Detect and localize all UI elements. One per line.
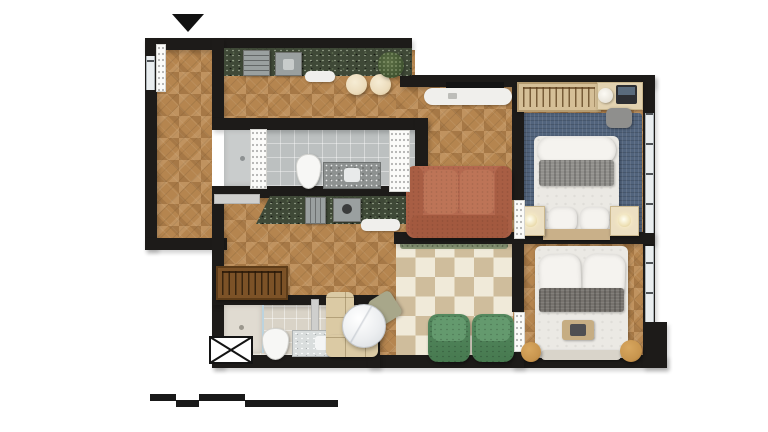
lamp-icon bbox=[524, 214, 537, 227]
scale-bar-segment-1 bbox=[150, 394, 176, 401]
coat-closet bbox=[216, 266, 288, 300]
service-shaft-x-icon bbox=[209, 336, 253, 364]
bedroom1-window bbox=[645, 113, 654, 233]
scale-bar-segment-2 bbox=[176, 400, 199, 407]
laptop-icon bbox=[616, 85, 637, 104]
breakfast-tray bbox=[562, 320, 594, 340]
nightstand-right bbox=[610, 206, 639, 236]
bedroom1-door-leaf bbox=[514, 200, 525, 239]
bed2 bbox=[535, 246, 628, 358]
sofa-back bbox=[410, 215, 508, 238]
desk-pad bbox=[598, 88, 613, 103]
pouf-right bbox=[620, 340, 642, 362]
plant-icon bbox=[378, 52, 404, 78]
pouf-left bbox=[521, 342, 541, 362]
hangers bbox=[222, 271, 282, 295]
entry-window bbox=[146, 56, 155, 90]
entry-door-leaf bbox=[156, 44, 166, 92]
entrance-arrow-icon bbox=[168, 12, 208, 34]
bedroom2-window bbox=[645, 246, 654, 322]
wall-bathroom1-top bbox=[212, 118, 428, 130]
tray-item bbox=[570, 324, 586, 336]
burner bbox=[342, 204, 352, 214]
bathroom1-door-left bbox=[250, 129, 267, 189]
vanity-1 bbox=[323, 162, 381, 189]
green-armchair-2 bbox=[472, 314, 514, 362]
kitchen-shelf-lower bbox=[361, 219, 400, 231]
kitchen-sink-upper bbox=[275, 52, 302, 76]
remote bbox=[448, 93, 457, 99]
shower2-head bbox=[239, 325, 244, 330]
kitchen-stool-1 bbox=[346, 74, 367, 95]
wall-dining-bedroom2 bbox=[512, 244, 524, 312]
bed2-bench bbox=[541, 350, 621, 360]
wall-spine-upper bbox=[212, 38, 224, 122]
desk-chair bbox=[606, 108, 632, 128]
bed1-blanket bbox=[539, 160, 614, 186]
sofa-cushion-1 bbox=[424, 170, 458, 214]
green-armchair-1 bbox=[428, 314, 470, 362]
lamp-icon bbox=[618, 214, 631, 227]
oven-icon bbox=[305, 197, 326, 224]
stove-icon bbox=[243, 50, 270, 76]
sofa-terracotta bbox=[406, 166, 512, 238]
hallway-sliding-door bbox=[214, 194, 260, 204]
bedroom1-wardrobe bbox=[517, 82, 601, 112]
armchair-seat bbox=[432, 317, 466, 341]
bathroom2-door-leaf bbox=[311, 299, 319, 331]
cooktop-icon bbox=[333, 198, 361, 222]
dining-table-round bbox=[342, 304, 386, 348]
media-console bbox=[424, 88, 512, 105]
kitchen-shelf-upper bbox=[305, 71, 335, 82]
bed1-headboard bbox=[543, 229, 610, 240]
sink-basin bbox=[283, 59, 294, 70]
wall-corner-bottom-right bbox=[643, 322, 667, 368]
wardrobe-hangers bbox=[523, 87, 595, 107]
shower-drain bbox=[240, 156, 245, 161]
scale-bar-segment-3 bbox=[199, 394, 245, 401]
bed2-blanket bbox=[539, 288, 624, 312]
floor-plan bbox=[0, 0, 768, 432]
bed1 bbox=[534, 136, 619, 234]
bathroom1-door-right bbox=[389, 130, 410, 192]
sofa-cushion-2 bbox=[460, 170, 494, 214]
scale-bar-segment-4 bbox=[245, 400, 338, 407]
armchair-seat bbox=[476, 317, 510, 341]
vanity1-sink bbox=[344, 168, 360, 182]
